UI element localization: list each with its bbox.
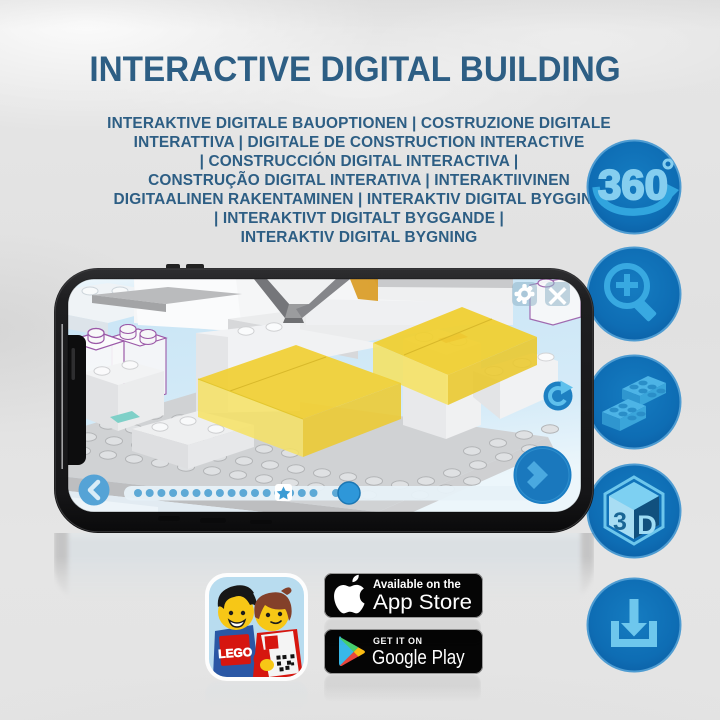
svg-text:D: D — [637, 510, 657, 540]
svg-text:LEGO: LEGO — [218, 645, 253, 661]
svg-text:3: 3 — [613, 508, 627, 536]
svg-text:360: 360 — [598, 161, 668, 208]
